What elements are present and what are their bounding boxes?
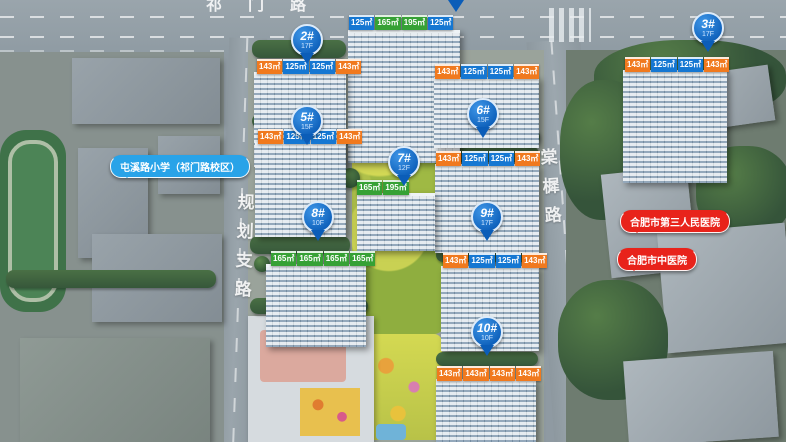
area-tag: 143㎡ xyxy=(437,366,462,381)
area-tag-row: 143㎡125㎡125㎡143㎡ xyxy=(436,151,540,166)
area-tag: 143㎡ xyxy=(435,64,460,79)
pin-tip xyxy=(300,53,314,64)
pin-label: 7# xyxy=(397,152,410,164)
building-pin-9[interactable]: 9#17F xyxy=(470,201,504,241)
area-tag: 125㎡ xyxy=(349,15,374,30)
area-tag: 125㎡ xyxy=(462,151,487,166)
area-tag: 125㎡ xyxy=(651,57,676,72)
area-tag-row: 125㎡165㎡195㎡125㎡ xyxy=(349,15,453,30)
landmark-hospital-third-bubble: 合肥市第三人民医院 xyxy=(620,210,730,233)
residential-tower-3 xyxy=(623,70,727,183)
pin-tip xyxy=(476,127,490,138)
pin-tip xyxy=(480,345,494,356)
residential-tower-7 xyxy=(357,193,435,251)
area-tag: 143㎡ xyxy=(336,59,361,74)
area-tag: 143㎡ xyxy=(337,129,362,144)
area-tag: 125㎡ xyxy=(428,15,453,30)
building-pin-2[interactable]: 2#17F xyxy=(290,24,324,64)
pin-label: 5# xyxy=(300,111,313,123)
tree-row xyxy=(6,270,216,288)
pin-label: 8# xyxy=(311,207,324,219)
pin-floors: 17F xyxy=(301,43,313,50)
area-tag: 125㎡ xyxy=(678,57,703,72)
building-pin-5[interactable]: 5#15F xyxy=(290,105,324,145)
pin-tip xyxy=(311,230,325,241)
building-pin-partial xyxy=(448,0,464,12)
area-tag: 125㎡ xyxy=(489,151,514,166)
building-pin-6[interactable]: 6#15F xyxy=(466,98,500,138)
pin-label: 10# xyxy=(477,322,497,334)
pin-floors: 15F xyxy=(477,117,489,124)
pin-label: 3# xyxy=(701,18,714,30)
school-building xyxy=(72,58,220,124)
area-tag-row: 143㎡125㎡125㎡143㎡ xyxy=(443,253,547,268)
area-tag-row: 165㎡165㎡165㎡165㎡ xyxy=(271,251,375,266)
pin-label: 6# xyxy=(476,104,489,116)
residential-tower-10 xyxy=(436,379,536,442)
pin-tip xyxy=(480,230,494,241)
pin-floors: 10F xyxy=(312,220,324,227)
area-tag: 143㎡ xyxy=(463,366,488,381)
building-pin-8[interactable]: 8#10F xyxy=(301,201,335,241)
pin-floors: 10F xyxy=(481,335,493,342)
area-tag: 143㎡ xyxy=(704,57,729,72)
landmark-school-bubble: 屯溪路小学（祁门路校区） xyxy=(110,155,250,178)
area-tag: 143㎡ xyxy=(515,151,540,166)
area-tag-row: 143㎡125㎡125㎡143㎡ xyxy=(625,57,729,72)
area-tag: 125㎡ xyxy=(488,64,513,79)
area-tag: 143㎡ xyxy=(257,59,282,74)
building-pin-7[interactable]: 7#12F xyxy=(387,146,421,186)
building-pin-10[interactable]: 10#10F xyxy=(470,316,504,356)
pin-tip xyxy=(701,41,715,52)
area-tag: 143㎡ xyxy=(258,129,283,144)
aerial-site-map: 125㎡165㎡195㎡125㎡ 143㎡125㎡125㎡143㎡ 143㎡12… xyxy=(0,0,786,442)
area-tag: 165㎡ xyxy=(350,251,375,266)
area-tag: 143㎡ xyxy=(514,64,539,79)
area-tag-row: 143㎡125㎡125㎡143㎡ xyxy=(435,64,539,79)
area-tag: 143㎡ xyxy=(490,366,515,381)
area-tag: 165㎡ xyxy=(375,15,400,30)
road-label-left: 规划支路 xyxy=(228,193,257,310)
pin-floors: 17F xyxy=(702,31,714,38)
area-tag: 165㎡ xyxy=(297,251,322,266)
area-tag: 165㎡ xyxy=(324,251,349,266)
area-tag: 143㎡ xyxy=(516,366,541,381)
area-tag: 195㎡ xyxy=(402,15,427,30)
pin-floors: 17F xyxy=(481,220,493,227)
area-tag: 143㎡ xyxy=(625,57,650,72)
hospital-building xyxy=(623,351,779,442)
area-tag: 143㎡ xyxy=(436,151,461,166)
pool xyxy=(376,424,406,440)
pin-label: 2# xyxy=(300,30,313,42)
ground-lot xyxy=(20,338,210,442)
landmark-hospital-tcm-bubble: 合肥市中医院 xyxy=(617,248,697,271)
area-tag: 143㎡ xyxy=(443,253,468,268)
hospital-building xyxy=(657,223,786,354)
pin-tip xyxy=(397,175,411,186)
kindergarten-courtyard xyxy=(300,388,360,436)
residential-tower-8 xyxy=(266,264,366,347)
pin-floors: 12F xyxy=(398,165,410,172)
area-tag: 125㎡ xyxy=(469,253,494,268)
road-label-top: 祁门路 xyxy=(206,0,332,15)
pin-floors: 15F xyxy=(301,124,313,131)
area-tag-row: 143㎡143㎡143㎡143㎡ xyxy=(437,366,541,381)
west-block xyxy=(0,52,224,442)
area-tag: 143㎡ xyxy=(522,253,547,268)
crosswalk xyxy=(549,8,591,42)
building-pin-3[interactable]: 3#17F xyxy=(691,12,725,52)
pin-label: 9# xyxy=(480,207,493,219)
area-tag: 125㎡ xyxy=(496,253,521,268)
area-tag: 165㎡ xyxy=(357,180,382,195)
area-tag: 125㎡ xyxy=(461,64,486,79)
pin-tip xyxy=(300,134,314,145)
area-tag: 165㎡ xyxy=(271,251,296,266)
